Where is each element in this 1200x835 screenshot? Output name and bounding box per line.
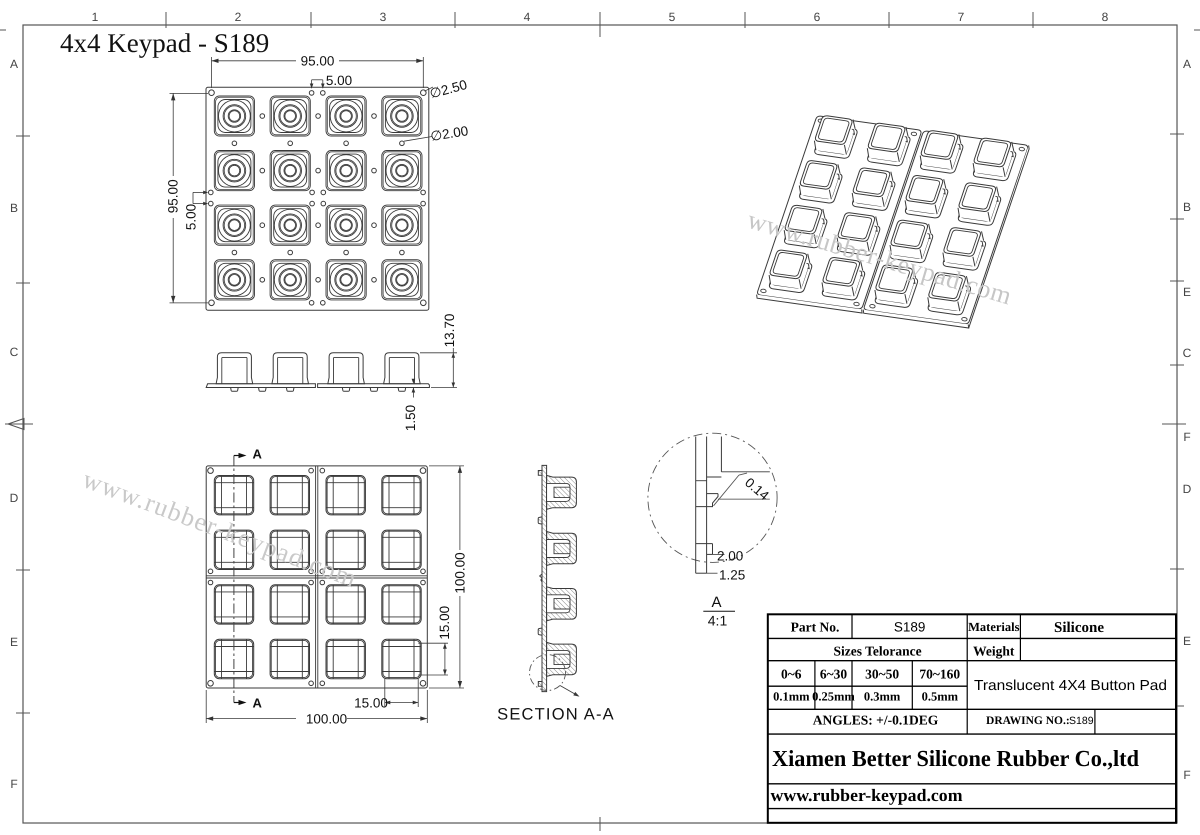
- svg-text:Sizes Telorance: Sizes Telorance: [833, 644, 921, 659]
- svg-text:A: A: [711, 594, 721, 611]
- svg-text:E: E: [1183, 285, 1191, 299]
- svg-text:S189: S189: [894, 620, 926, 635]
- svg-text:SECTION A-A: SECTION A-A: [497, 706, 615, 724]
- svg-text:95.00: 95.00: [166, 179, 181, 213]
- svg-text:100.00: 100.00: [453, 552, 468, 593]
- svg-text:1.25: 1.25: [719, 568, 745, 583]
- svg-text:4x4 Keypad - S189: 4x4 Keypad - S189: [60, 28, 269, 58]
- svg-text:100.00: 100.00: [306, 712, 347, 727]
- svg-text:5.00: 5.00: [184, 204, 199, 230]
- svg-text:2.00: 2.00: [717, 549, 743, 564]
- svg-text:0~6: 0~6: [781, 667, 802, 682]
- svg-text:70~160: 70~160: [919, 667, 960, 682]
- svg-text:15.00: 15.00: [437, 606, 452, 640]
- svg-text:E: E: [10, 635, 18, 649]
- svg-text:7: 7: [958, 10, 965, 24]
- svg-text:A: A: [253, 447, 263, 462]
- svg-text:Part No.: Part No.: [791, 620, 840, 635]
- svg-text:30~50: 30~50: [865, 667, 899, 682]
- svg-text:S189: S189: [1069, 715, 1094, 727]
- svg-text:F: F: [10, 777, 17, 791]
- svg-text:Materials: Materials: [968, 620, 1020, 634]
- svg-text:A: A: [10, 57, 18, 71]
- svg-text:0.25mm: 0.25mm: [812, 690, 855, 704]
- svg-text:ANGLES: +/-0.1DEG: ANGLES: +/-0.1DEG: [813, 713, 939, 728]
- svg-text:D: D: [10, 491, 19, 505]
- svg-text:4:1: 4:1: [708, 613, 728, 629]
- svg-text:95.00: 95.00: [301, 54, 335, 69]
- svg-text:A: A: [1183, 57, 1191, 71]
- svg-text:E: E: [1183, 634, 1191, 648]
- svg-text:Silicone: Silicone: [1054, 620, 1104, 636]
- svg-text:C: C: [1183, 346, 1192, 360]
- svg-text:Xiamen Better Silicone Rubber: Xiamen Better Silicone Rubber Co.,ltd: [772, 746, 1139, 771]
- svg-text:2: 2: [235, 10, 242, 24]
- svg-text:C: C: [10, 345, 19, 359]
- svg-text:5: 5: [669, 10, 676, 24]
- svg-text:1: 1: [92, 10, 99, 24]
- svg-text:0.5mm: 0.5mm: [922, 690, 959, 704]
- svg-text:F: F: [1183, 768, 1190, 782]
- svg-text:1.50: 1.50: [403, 405, 418, 431]
- svg-text:0.1mm: 0.1mm: [773, 690, 810, 704]
- svg-text:D: D: [1183, 482, 1192, 496]
- svg-text:13.70: 13.70: [442, 314, 457, 348]
- svg-text:F: F: [1183, 430, 1190, 444]
- svg-text:0.3mm: 0.3mm: [864, 690, 901, 704]
- svg-text:8: 8: [1102, 10, 1109, 24]
- svg-text:15.00: 15.00: [354, 696, 388, 711]
- svg-text:Translucent 4X4 Button Pad: Translucent 4X4 Button Pad: [974, 678, 1167, 694]
- svg-text:A: A: [253, 696, 263, 711]
- svg-text:6: 6: [814, 10, 821, 24]
- svg-text:B: B: [1183, 200, 1191, 214]
- svg-text:DRAWING NO.:: DRAWING NO.:: [986, 715, 1070, 727]
- svg-text:4: 4: [524, 10, 531, 24]
- svg-text:B: B: [10, 201, 18, 215]
- svg-text:5.00: 5.00: [326, 73, 352, 88]
- svg-text:6~30: 6~30: [820, 667, 848, 682]
- svg-text:www.rubber-keypad.com: www.rubber-keypad.com: [771, 785, 963, 805]
- svg-text:3: 3: [380, 10, 387, 24]
- svg-text:Weight: Weight: [973, 644, 1015, 659]
